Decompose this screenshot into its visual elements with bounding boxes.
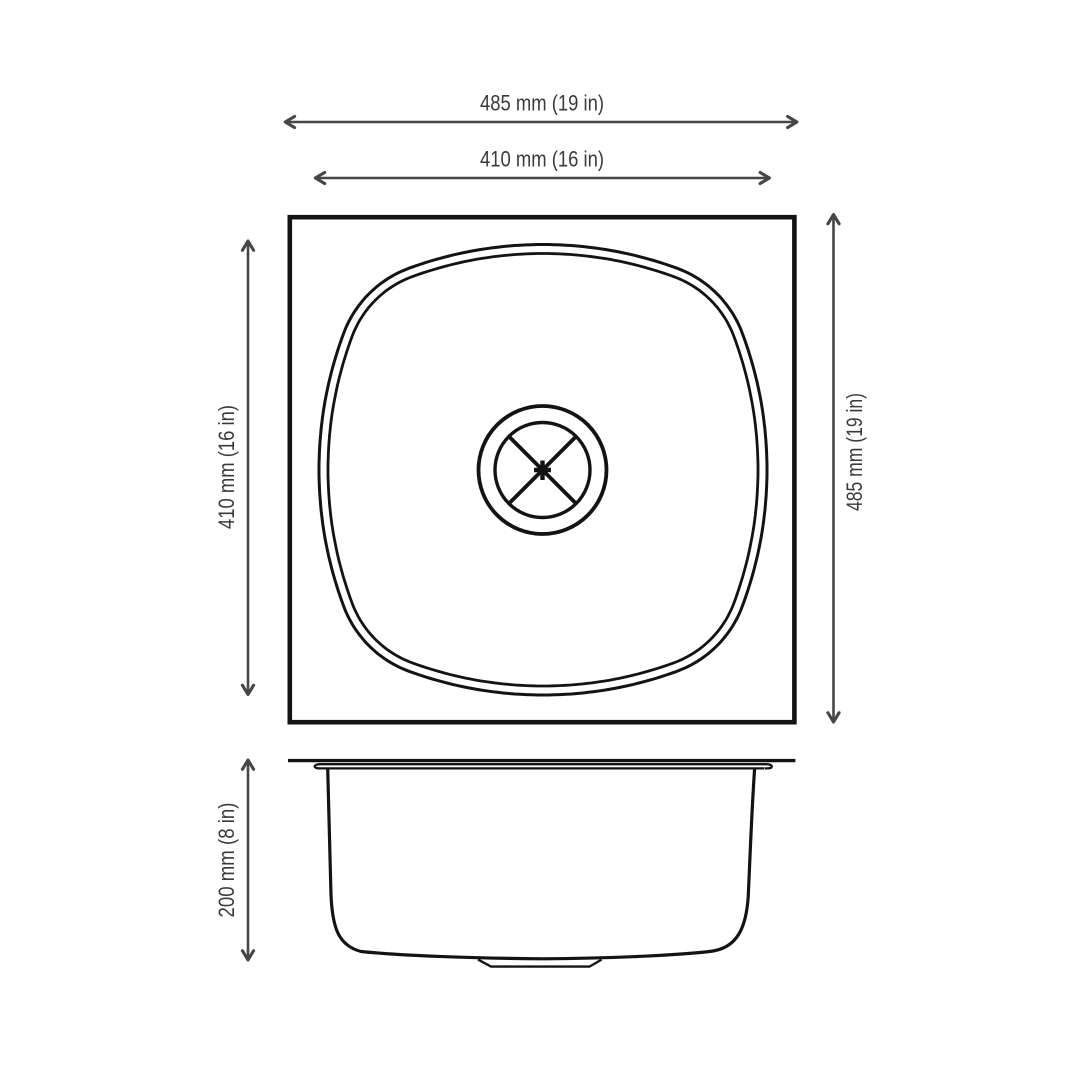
svg-text:200 mm (8 in): 200 mm (8 in) bbox=[214, 803, 239, 918]
svg-text:410 mm (16 in): 410 mm (16 in) bbox=[214, 405, 239, 529]
svg-text:485 mm (19 in): 485 mm (19 in) bbox=[480, 91, 604, 116]
svg-text:485 mm (19 in): 485 mm (19 in) bbox=[842, 393, 867, 511]
svg-text:410 mm (16 in): 410 mm (16 in) bbox=[480, 147, 604, 172]
